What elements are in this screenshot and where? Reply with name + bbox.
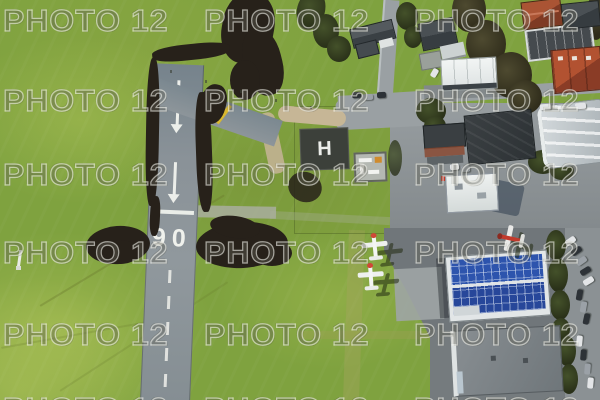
watermark: PHOTO 12 xyxy=(3,317,169,353)
watermark: PHOTO 12 xyxy=(204,83,370,119)
watermark: PHOTO 12 xyxy=(414,235,580,271)
hedge xyxy=(327,36,351,62)
roof-vent xyxy=(491,356,496,361)
car xyxy=(587,377,594,388)
signal-bar xyxy=(368,170,379,174)
roof-unit xyxy=(477,192,486,198)
runway-arrow xyxy=(173,162,177,196)
car xyxy=(580,349,587,360)
tree xyxy=(388,140,402,176)
watermark: PHOTO 12 xyxy=(414,317,580,353)
tailplane xyxy=(369,255,383,260)
watermark: PHOTO 12 xyxy=(414,83,580,119)
watermark: PHOTO 12 xyxy=(414,157,580,193)
car xyxy=(377,92,386,98)
aerial-photo: 90 H xyxy=(0,0,600,400)
watermark: PHOTO 12 xyxy=(3,391,169,400)
watermark: PHOTO 12 xyxy=(204,157,370,193)
signal-orange xyxy=(375,157,382,163)
taxiway-arrow-head xyxy=(170,124,182,133)
dormer xyxy=(558,56,563,60)
hedge-right xyxy=(550,290,570,320)
watermark: PHOTO 12 xyxy=(204,235,370,271)
watermark: PHOTO 12 xyxy=(3,157,169,193)
watermark: PHOTO 12 xyxy=(204,391,370,400)
watermark: PHOTO 12 xyxy=(3,235,169,271)
fence-post xyxy=(170,70,172,73)
watermark: PHOTO 12 xyxy=(3,83,169,119)
watermark: PHOTO 12 xyxy=(204,317,370,353)
runway-arrow-head xyxy=(167,194,179,203)
watermark: PHOTO 12 xyxy=(414,391,580,400)
dormer xyxy=(586,56,591,60)
watermark: PHOTO 12 xyxy=(414,3,580,39)
roof-corner xyxy=(453,305,480,316)
watermark: PHOTO 12 xyxy=(204,3,370,39)
tailplane xyxy=(365,285,379,290)
white-wall xyxy=(379,37,395,48)
car xyxy=(584,363,591,374)
roof-vent xyxy=(523,358,528,363)
dormer xyxy=(572,56,577,60)
watermark: PHOTO 12 xyxy=(3,3,169,39)
